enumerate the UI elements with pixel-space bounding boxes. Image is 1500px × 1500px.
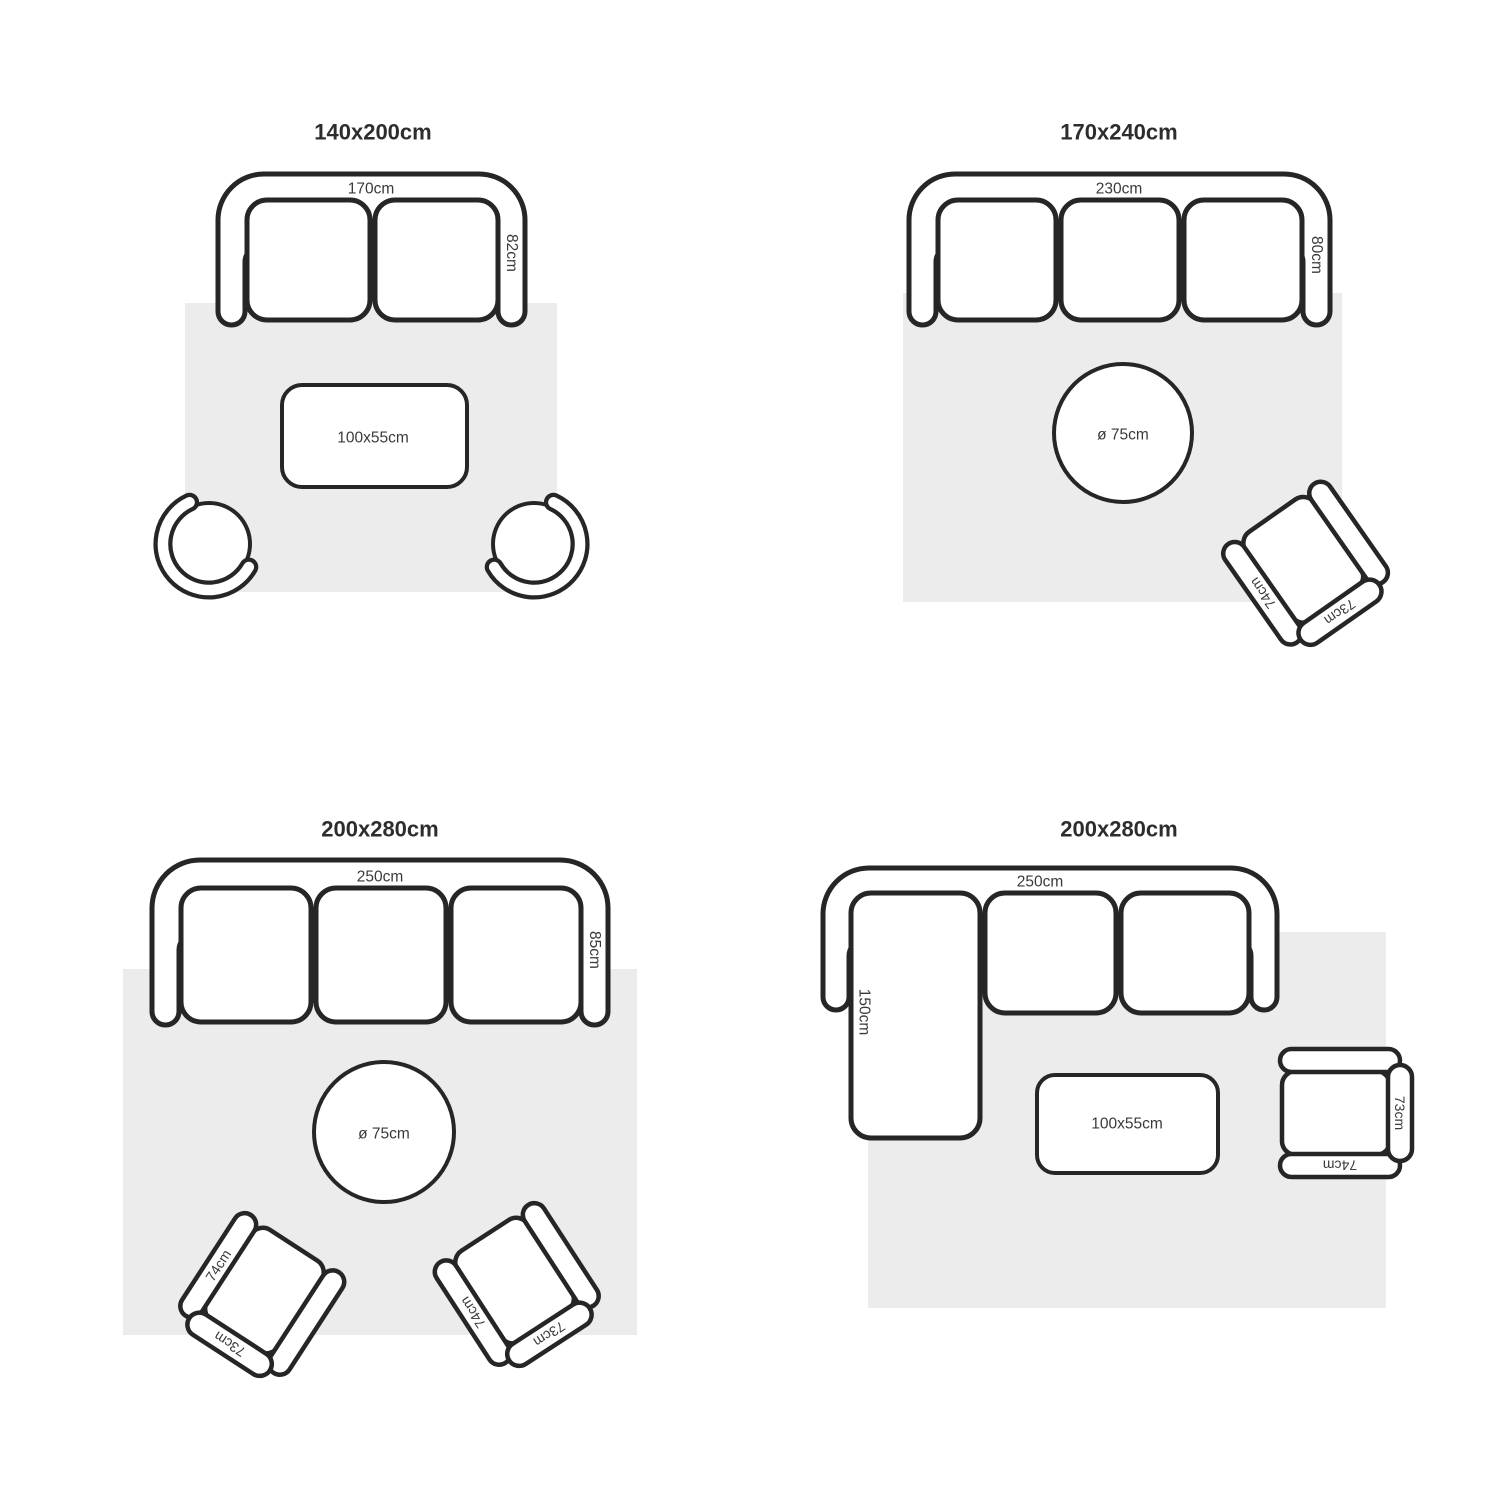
sofa-depth-label: 85cm [586,931,603,969]
table-size-label: ø 75cm [1097,427,1149,444]
sofa-depth-label: 82cm [503,234,520,272]
sofa-cushion [1061,200,1179,320]
armchair: 74cm 73cm [1280,1049,1412,1177]
table-size-label: 100x55cm [1091,1116,1163,1133]
sofa-cushion [451,888,581,1022]
armchair-seat [1282,1071,1390,1155]
layout-title: 200x280cm [1060,817,1177,842]
sofa-cushion [985,893,1116,1013]
sofa-width-label: 250cm [357,869,404,886]
sofa-cushion [1184,200,1302,320]
sofa-cushion [1121,893,1249,1013]
armchair-arm-right [1280,1049,1400,1072]
layout-170x240: 170x240cm 230cm 80cm ø 75cm 74cm 73cm [903,120,1399,659]
sofa-width-label: 170cm [348,181,395,198]
sofa-cushion [181,888,311,1022]
pouf-chair-right [493,502,580,590]
rug-size-guide-diagram: 140x200cm 170cm 82cm 100x55cm 170x240cm [0,0,1500,1500]
sofa-cushion [247,200,370,320]
table-size-label: ø 75cm [358,1126,410,1143]
layout-title: 200x280cm [321,817,438,842]
chaise-length-label: 150cm [856,989,873,1036]
layout-140x200: 140x200cm 170cm 82cm 100x55cm [163,120,580,593]
sofa-cushion [316,888,446,1022]
layout-200x280-a: 200x280cm 250cm 85cm ø 75cm 74cm 73cm 74… [123,817,637,1390]
table-size-label: 100x55cm [337,430,409,447]
layout-title: 170x240cm [1060,120,1177,145]
sofa-width-label: 230cm [1096,181,1143,198]
sofa-depth-label: 80cm [1308,236,1325,274]
chair-back-label: 73cm [1392,1096,1408,1130]
layout-title: 140x200cm [314,120,431,145]
sofa-cushion [938,200,1056,320]
sofa-width-label: 250cm [1017,874,1064,891]
chair-arm-label: 74cm [1323,1158,1357,1174]
sofa-cushion [375,200,498,320]
layout-200x280-b: 200x280cm 250cm 150cm 100x55cm 74cm 73cm [823,817,1412,1309]
pouf-chair-left [163,502,250,590]
rug-size-guide: 140x200cm 170cm 82cm 100x55cm 170x240cm [0,0,1500,1500]
